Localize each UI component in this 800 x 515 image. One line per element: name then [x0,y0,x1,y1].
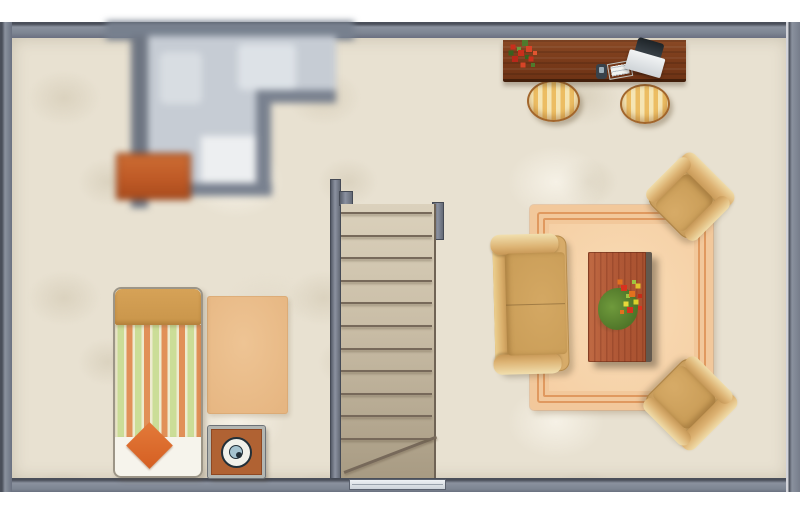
stair-rail-left [330,179,341,479]
stair-tread-line [341,212,432,214]
stair-treads [341,204,436,478]
speaker-center [236,452,242,458]
stool-left[interactable] [527,80,580,122]
sofa[interactable] [492,235,570,373]
bathroom-wall [188,183,272,196]
bed[interactable] [113,287,203,478]
bathroom-fixture [160,52,202,104]
stair-tread-line [341,393,432,395]
bed-blanket [115,325,201,437]
stair-tread-line [341,257,432,259]
bathroom-fixture [238,44,296,90]
stair-tread-line [341,302,432,304]
stair-winder-edge [344,436,437,474]
nightstand[interactable] [208,426,265,478]
stair-tread-line [341,348,432,350]
stair-tread-line [341,415,432,417]
stool-right[interactable] [620,84,670,124]
stair-tread-line [341,438,432,440]
bedroom-rug[interactable] [207,296,288,414]
dresser[interactable] [116,153,191,200]
stair-tread-line [341,370,432,372]
bathroom-wall [256,92,271,196]
sofa-armrest [493,353,562,375]
phone[interactable] [596,64,607,79]
wall-right [786,22,800,492]
bed-pillow [115,289,201,325]
window [349,479,446,490]
coffee-table[interactable] [588,252,652,362]
stair-tread-line [341,235,432,237]
bathroom-wall [256,90,336,103]
stair-tread-line [341,280,432,282]
speaker-disc-icon [221,437,252,468]
stair-tread-line [341,325,432,327]
floor-plan [0,0,800,515]
